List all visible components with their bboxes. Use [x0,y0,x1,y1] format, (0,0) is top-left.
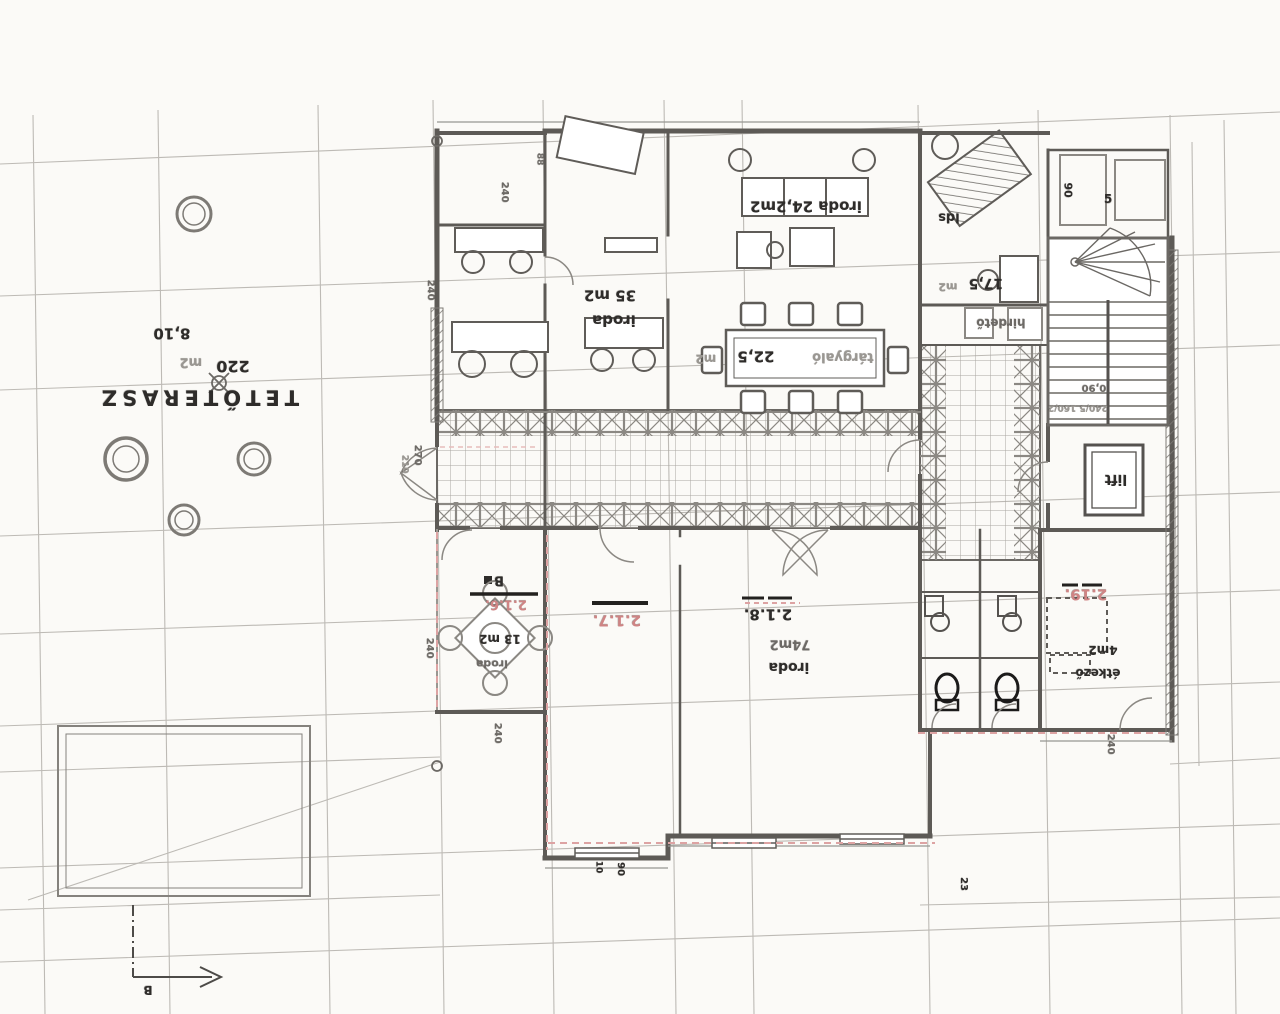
staircase [1048,155,1168,425]
terrace-circles [105,197,270,535]
lift-shaft [1085,445,1143,515]
floor-plan-scan: TETŐTERASZ220m28,1035 m2irodairoda 24,2m… [0,0,1280,1014]
floor-plan-drawing [0,0,1280,1014]
section-marker-b [133,905,221,987]
label-overlines [470,585,1102,603]
plot-box [58,726,310,896]
